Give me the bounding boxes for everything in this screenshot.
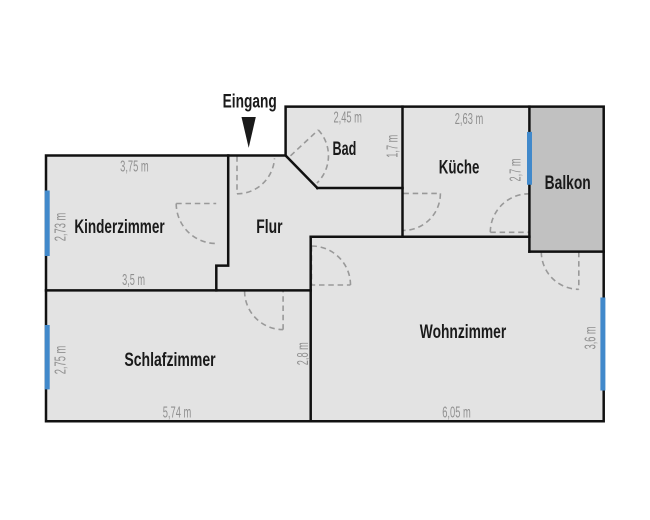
svg-text:2,7 m: 2,7 m [508,159,525,182]
svg-text:2,73 m: 2,73 m [53,213,70,242]
svg-text:2,45 m: 2,45 m [333,110,362,127]
svg-text:3,6 m: 3,6 m [583,326,600,349]
svg-text:Bad: Bad [333,139,357,160]
svg-text:Flur: Flur [256,217,283,238]
svg-text:Küche: Küche [439,158,480,179]
svg-text:2,75 m: 2,75 m [53,346,70,375]
svg-text:2,63 m: 2,63 m [455,111,484,128]
svg-text:3,75 m: 3,75 m [120,159,149,176]
svg-text:Kinderzimmer: Kinderzimmer [74,217,165,238]
svg-text:3,5 m: 3,5 m [122,272,145,289]
svg-text:Balkon: Balkon [545,173,591,194]
svg-text:Wohnzimmer: Wohnzimmer [420,322,507,343]
svg-text:5,74 m: 5,74 m [163,405,192,422]
svg-text:Eingang: Eingang [223,91,277,112]
svg-text:Schlafzimmer: Schlafzimmer [124,350,216,371]
svg-text:6,05 m: 6,05 m [442,405,471,422]
svg-text:1,7 m: 1,7 m [385,135,402,158]
svg-text:2,8 m: 2,8 m [295,342,312,365]
